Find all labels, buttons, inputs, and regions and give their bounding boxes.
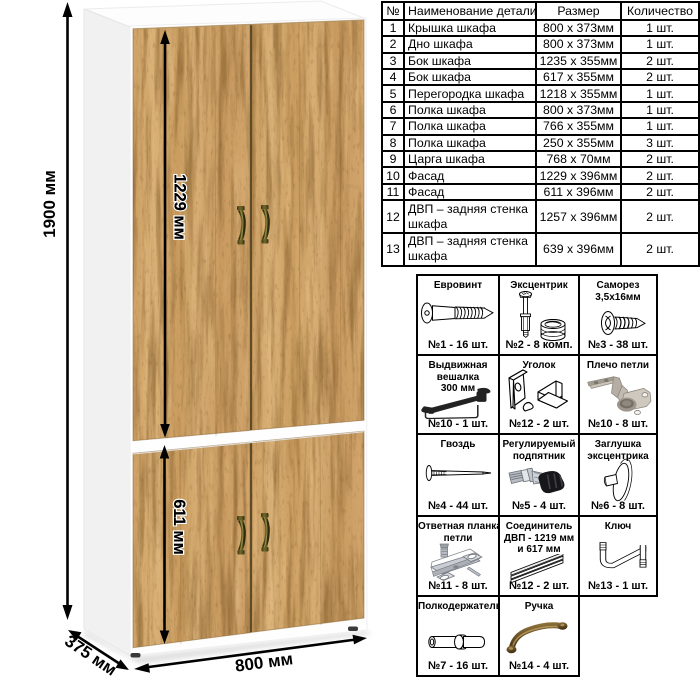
svg-text:611 мм: 611 мм <box>170 499 188 555</box>
svg-text:1229 мм: 1229 мм <box>171 174 189 240</box>
svg-text:1900 мм: 1900 мм <box>40 170 59 238</box>
